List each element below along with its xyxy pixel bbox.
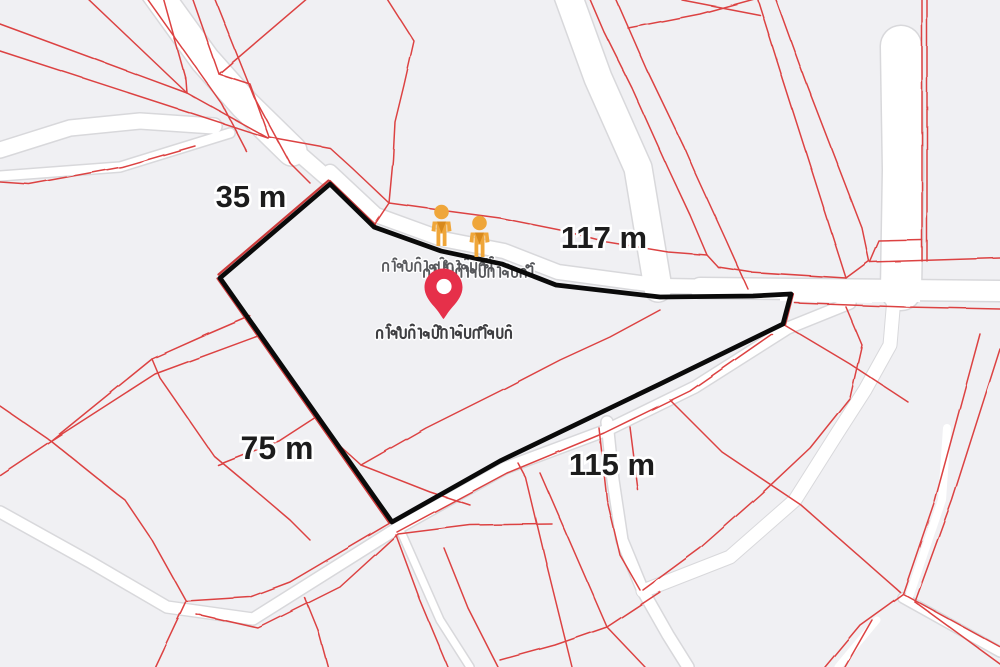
svg-text:115 m: 115 m bbox=[569, 447, 655, 482]
svg-text:35 m: 35 m bbox=[216, 179, 287, 214]
svg-text:117 m: 117 m bbox=[561, 220, 647, 255]
svg-text:75 m: 75 m bbox=[241, 430, 314, 466]
